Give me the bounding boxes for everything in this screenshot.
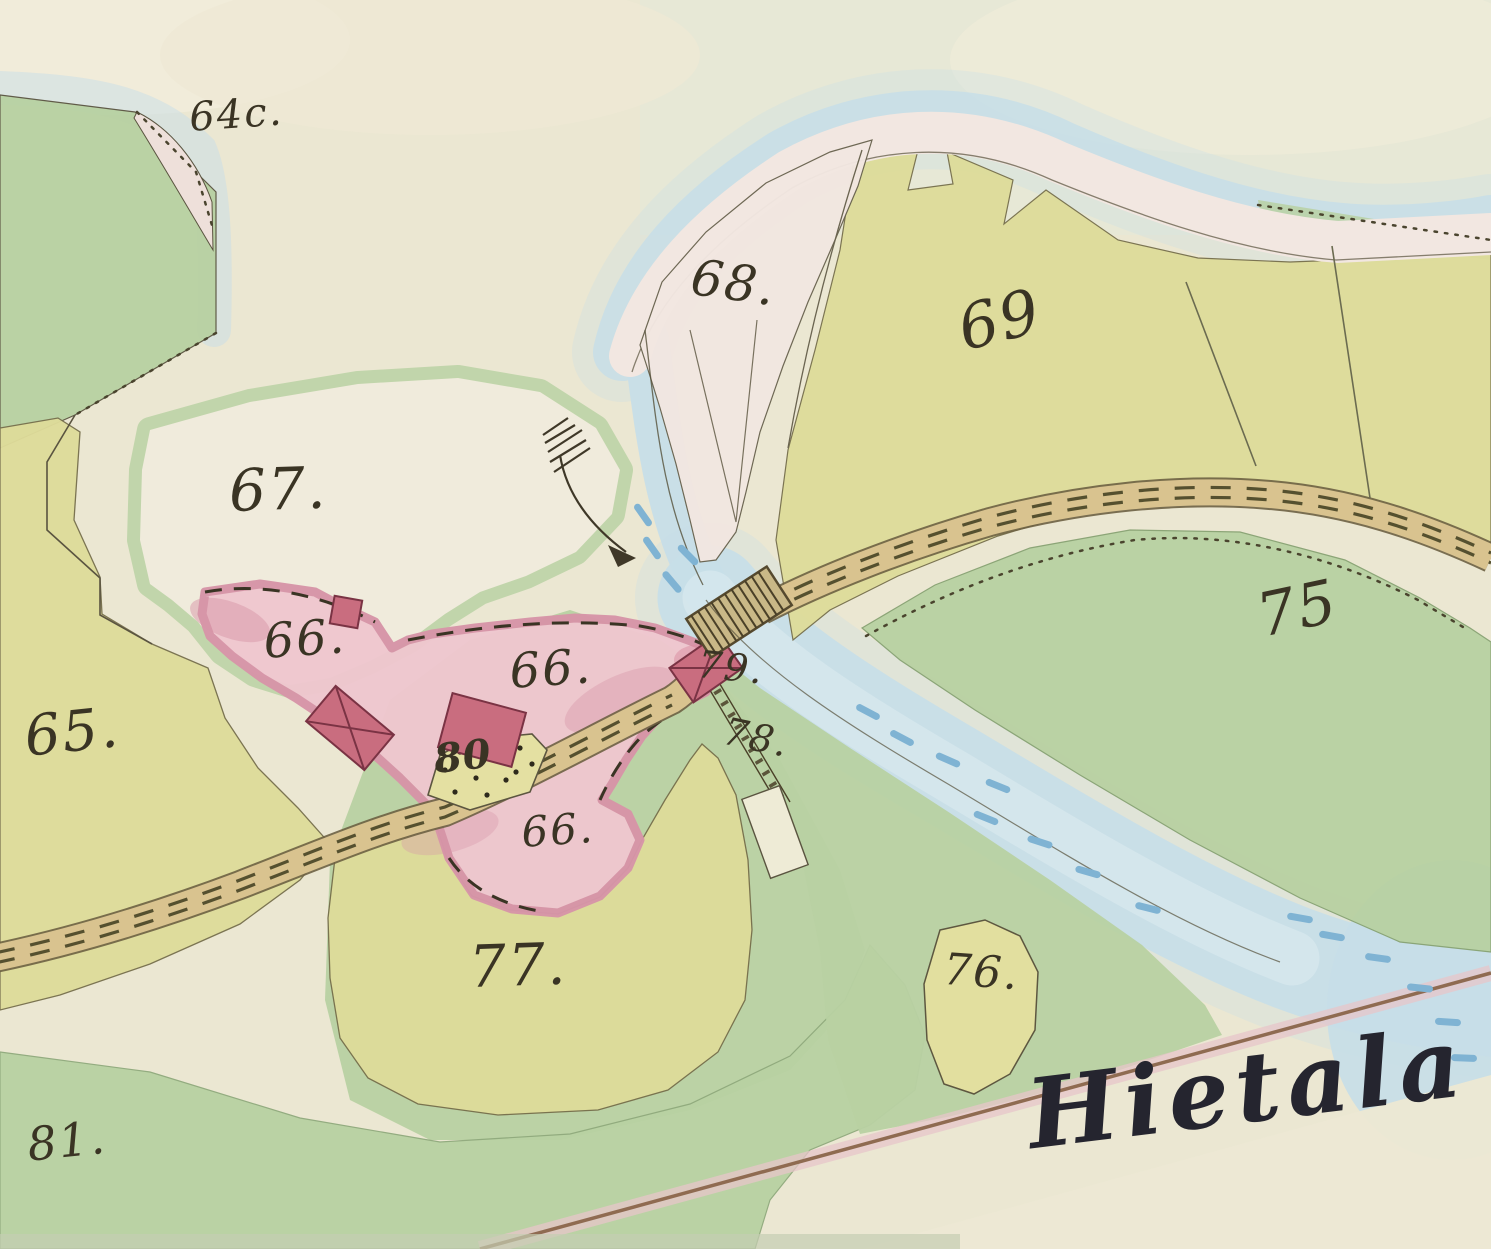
map-drawing xyxy=(0,0,1491,1249)
map-canvas: 64c.67.68.697565.66.66.66.8079.78.77.76.… xyxy=(0,0,1491,1249)
building-small xyxy=(330,596,362,628)
bottom-edge-band xyxy=(0,1234,960,1249)
